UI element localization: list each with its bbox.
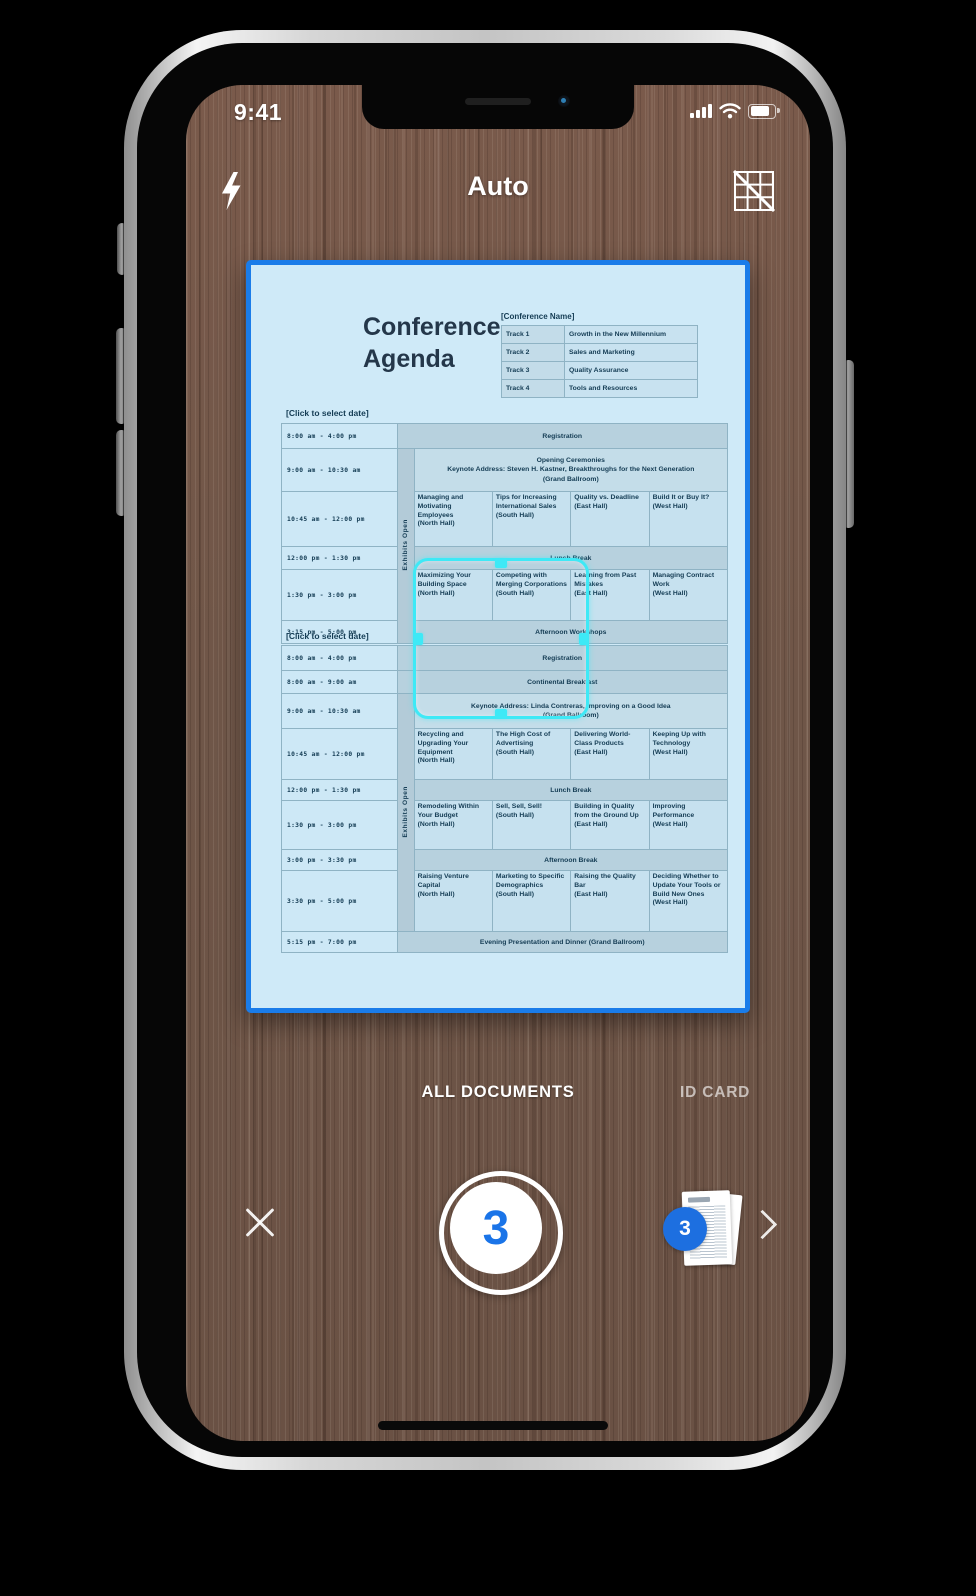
- session-cell: Sell, Sell, Sell! (South Hall): [492, 801, 570, 850]
- track-value: Tools and Resources: [565, 380, 698, 398]
- table-row: 9:00 am - 10:30 amExhibits OpenOpening C…: [282, 449, 728, 492]
- focus-frame: [413, 558, 589, 719]
- close-button[interactable]: [238, 1201, 282, 1245]
- session-cell: Deciding Whether to Update Your Tools or…: [649, 871, 727, 932]
- front-camera: [558, 95, 570, 107]
- band-cell: Afternoon Break: [414, 850, 727, 871]
- track-value: Sales and Marketing: [565, 344, 698, 362]
- table-row: 10:45 am - 12:00 pmRecycling and Upgradi…: [282, 729, 728, 780]
- time-cell: 9:00 am - 10:30 am: [282, 694, 398, 729]
- exhibits-cell: Exhibits Open: [397, 449, 414, 644]
- session-cell: The High Cost of Advertising (South Hall…: [492, 729, 570, 780]
- session-cell: Quality vs. Deadline (East Hall): [571, 492, 649, 547]
- time-cell: 8:00 am - 9:00 am: [282, 671, 398, 694]
- table-row: 3:30 pm - 5:00 pmRaising Venture Capital…: [282, 871, 728, 932]
- table-row: Track 2Sales and Marketing: [502, 344, 698, 362]
- session-cell: Remodeling Within Your Budget (North Hal…: [414, 801, 492, 850]
- time-cell: 8:00 am - 4:00 pm: [282, 424, 398, 449]
- screenshot-root: 9:41: [0, 0, 976, 1596]
- session-cell: Managing and Motivating Employees (North…: [414, 492, 492, 547]
- session-cell: Building in Quality from the Ground Up (…: [571, 801, 649, 850]
- time-cell: 3:30 pm - 5:00 pm: [282, 871, 398, 932]
- battery-icon: [748, 104, 776, 119]
- session-cell: Improving Performance (West Hall): [649, 801, 727, 850]
- time-cell: 12:00 pm - 1:30 pm: [282, 547, 398, 570]
- camera-preview-screen: 9:41: [186, 85, 810, 1441]
- chevron-right-icon: [748, 1210, 778, 1240]
- session-cell: Raising the Quality Bar (East Hall): [571, 871, 649, 932]
- session-cell: Recycling and Upgrading Your Equipment (…: [414, 729, 492, 780]
- time-cell: 12:00 pm - 1:30 pm: [282, 780, 398, 801]
- document-thumbnail[interactable]: 3: [681, 1189, 741, 1275]
- session-cell: Managing Contract Work (West Hall): [649, 570, 727, 621]
- band-cell: Registration: [397, 424, 727, 449]
- grid-toggle-button[interactable]: [730, 167, 778, 215]
- session-cell: Build It or Buy It? (West Hall): [649, 492, 727, 547]
- band-cell: Lunch Break: [414, 780, 727, 801]
- keynote-cell: Opening Ceremonies Keynote Address: Stev…: [414, 449, 727, 492]
- tab-id-card[interactable]: ID CARD: [680, 1084, 750, 1102]
- next-button[interactable]: [746, 1203, 778, 1247]
- phone-notch: [362, 85, 634, 129]
- band-cell: Evening Presentation and Dinner (Grand B…: [397, 932, 727, 953]
- time-cell: 1:30 pm - 3:00 pm: [282, 570, 398, 621]
- cellular-signal-icon: [690, 104, 712, 118]
- session-cell: Tips for Increasing International Sales …: [492, 492, 570, 547]
- track-label: Track 3: [502, 362, 565, 380]
- time-cell: 10:45 am - 12:00 pm: [282, 492, 398, 547]
- time-cell: 5:15 pm - 7:00 pm: [282, 932, 398, 953]
- track-label: Track 1: [502, 326, 565, 344]
- track-value: Quality Assurance: [565, 362, 698, 380]
- grid-off-icon: [731, 168, 777, 214]
- exhibits-cell: Exhibits Open: [397, 694, 414, 932]
- time-cell: 8:00 am - 4:00 pm: [282, 646, 398, 671]
- session-cell: Delivering World-Class Products (East Ha…: [571, 729, 649, 780]
- exhibits-open-label: Exhibits Open: [402, 519, 409, 571]
- table-row: Track 4Tools and Resources: [502, 380, 698, 398]
- session-cell: Marketing to Specific Demographics (Sout…: [492, 871, 570, 932]
- phone-frame: 9:41: [124, 30, 846, 1470]
- status-time: 9:41: [234, 99, 282, 126]
- table-row: Track 3Quality Assurance: [502, 362, 698, 380]
- capture-mode-label[interactable]: Auto: [186, 171, 810, 202]
- table-row: 12:00 pm - 1:30 pmLunch Break: [282, 780, 728, 801]
- time-cell: 1:30 pm - 3:00 pm: [282, 801, 398, 850]
- table-row: 10:45 am - 12:00 pmManaging and Motivati…: [282, 492, 728, 547]
- conference-name-header: [Conference Name]: [501, 312, 574, 321]
- mode-tabs: ALL DOCUMENTS ID CARD: [186, 1083, 810, 1107]
- exhibits-open-label: Exhibits Open: [402, 786, 409, 838]
- session-cell: Raising Venture Capital (North Hall): [414, 871, 492, 932]
- track-label: Track 2: [502, 344, 565, 362]
- day2-date-label: [Click to select date]: [286, 631, 369, 641]
- phone-bezel: 9:41: [137, 43, 833, 1457]
- document-title: Conference Agenda: [363, 311, 501, 375]
- time-cell: 3:00 pm - 3:30 pm: [282, 850, 398, 871]
- track-label: Track 4: [502, 380, 565, 398]
- time-cell: 10:45 am - 12:00 pm: [282, 729, 398, 780]
- home-indicator[interactable]: [378, 1421, 608, 1430]
- wifi-icon: [719, 103, 741, 119]
- time-cell: 9:00 am - 10:30 am: [282, 449, 398, 492]
- table-row: 5:15 pm - 7:00 pmEvening Presentation an…: [282, 932, 728, 953]
- table-row: 8:00 am - 4:00 pmRegistration: [282, 424, 728, 449]
- camera-toolbar: Auto: [186, 163, 810, 219]
- page-count-badge: 3: [663, 1207, 707, 1251]
- earpiece-speaker: [465, 98, 531, 105]
- table-row: 1:30 pm - 3:00 pmRemodeling Within Your …: [282, 801, 728, 850]
- shutter-count: 3: [450, 1182, 542, 1274]
- shutter-button[interactable]: 3: [439, 1171, 563, 1295]
- session-cell: Keeping Up with Technology (West Hall): [649, 729, 727, 780]
- table-row: Track 1Growth in the New Millennium: [502, 326, 698, 344]
- table-row: 3:00 pm - 3:30 pmAfternoon Break: [282, 850, 728, 871]
- tracks-table: Track 1Growth in the New Millennium Trac…: [501, 325, 698, 398]
- track-value: Growth in the New Millennium: [565, 326, 698, 344]
- day1-date-label: [Click to select date]: [286, 408, 369, 418]
